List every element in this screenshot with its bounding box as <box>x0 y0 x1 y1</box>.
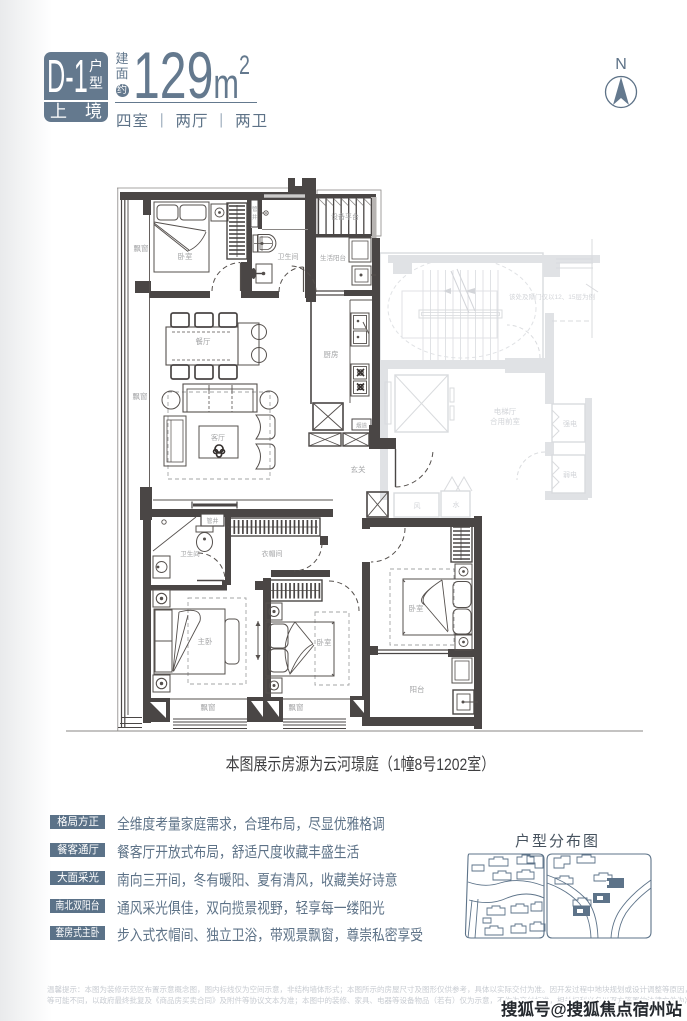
svg-text:卧室: 卧室 <box>409 603 424 613</box>
svg-text:管井: 管井 <box>206 517 218 525</box>
svg-text:弱电: 弱电 <box>563 470 577 479</box>
svg-text:管: 管 <box>252 205 258 213</box>
svg-text:水: 水 <box>453 500 460 509</box>
svg-text:该处及隔门仅以12、15层为例: 该处及隔门仅以12、15层为例 <box>509 292 595 301</box>
svg-text:飘窗: 飘窗 <box>201 702 216 712</box>
svg-text:卧室: 卧室 <box>317 637 332 647</box>
svg-text:飘窗: 飘窗 <box>133 391 148 401</box>
svg-text:卫生间: 卫生间 <box>180 549 200 558</box>
svg-text:卫生间: 卫生间 <box>278 252 299 261</box>
svg-text:卧室: 卧室 <box>178 251 193 261</box>
svg-text:主卧: 主卧 <box>198 636 213 646</box>
svg-text:电梯厅: 电梯厅 <box>494 406 517 416</box>
svg-text:阳台: 阳台 <box>410 684 425 694</box>
svg-text:井: 井 <box>252 213 258 221</box>
svg-text:生活阳台: 生活阳台 <box>320 253 346 262</box>
svg-text:飘窗: 飘窗 <box>289 702 304 712</box>
svg-text:飘窗: 飘窗 <box>134 243 149 253</box>
svg-text:合用前室: 合用前室 <box>490 416 520 426</box>
svg-text:强电: 强电 <box>563 419 577 428</box>
svg-text:风: 风 <box>414 502 421 510</box>
svg-text:设备平台: 设备平台 <box>331 212 359 221</box>
svg-text:餐厅: 餐厅 <box>196 337 211 346</box>
svg-text:玄关: 玄关 <box>351 464 366 474</box>
svg-text:烟道: 烟道 <box>356 422 368 430</box>
svg-text:客厅: 客厅 <box>211 433 225 442</box>
svg-text:衣帽间: 衣帽间 <box>262 549 283 558</box>
svg-text:厨房: 厨房 <box>324 349 339 359</box>
